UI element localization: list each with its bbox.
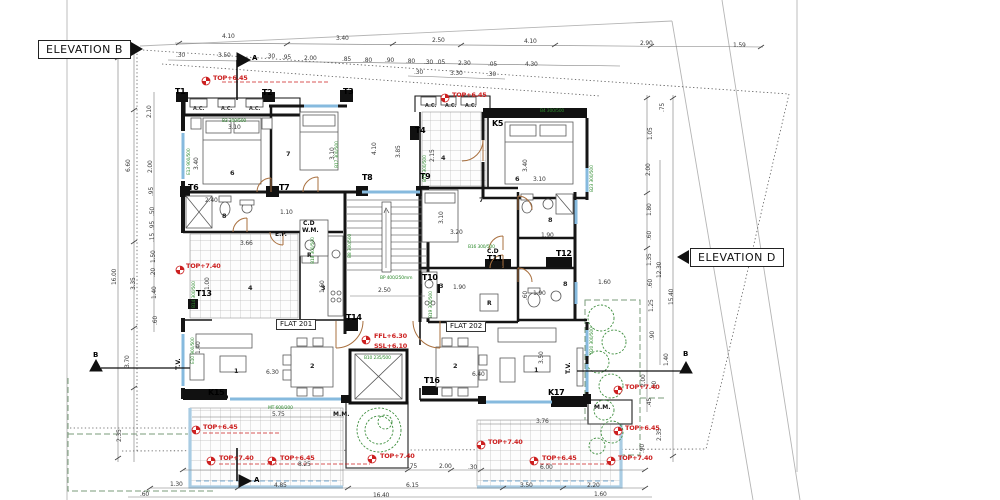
level-annotation-4: SSL+6.10 [374, 343, 407, 350]
dim-61: 6.00 [540, 465, 553, 471]
dim-3: 4.10 [524, 39, 537, 45]
level-annotation-3: FFL+6.30 [374, 333, 407, 340]
dim-81: 2.15 [430, 149, 436, 162]
wall-tag-6: T7 [279, 184, 289, 192]
dim-93: 3.50 [539, 351, 545, 364]
wall-tag-4: K5 [492, 120, 503, 128]
section-letter-1: A [254, 477, 259, 484]
dim-82: 3.40 [523, 159, 529, 172]
dim-58: .75 [408, 464, 417, 470]
window-code-2: B17 300/500 [336, 141, 341, 168]
utility-label-3: W.M. [302, 228, 319, 234]
dim-17: 2.30 [458, 61, 471, 67]
window-code-6: MT 600/200 [268, 407, 293, 412]
dim-29: 2.00 [148, 160, 154, 173]
window-code-15: B19 300/500 [430, 291, 435, 318]
room-number-13: 2 [453, 363, 458, 370]
dim-44: 12.30 [657, 262, 663, 278]
dim-22: .30 [487, 72, 496, 78]
dim-65: 3.50 [520, 483, 533, 489]
dim-85: 3.20 [450, 230, 463, 236]
dim-60: .30 [468, 465, 477, 471]
dim-31: .50 [150, 207, 156, 216]
dim-84: 3.10 [439, 211, 445, 224]
dim-87: 1.90 [533, 291, 546, 297]
floor-plan-sheet: { "elevations": { "b": "ELEVATION B", "d… [0, 0, 1000, 500]
utility-label-1: E.P. [497, 263, 509, 269]
dim-64: 6.15 [406, 483, 419, 489]
section-letter-0: A [252, 55, 257, 62]
dim-72: 2.40 [205, 198, 218, 204]
dim-73: 1.10 [280, 210, 293, 216]
flat-label-1: FLAT 202 [446, 321, 486, 332]
dim-56: 3.76 [536, 419, 549, 425]
room-number-3: 4 [248, 285, 253, 292]
utility-label-10: T.V. [566, 362, 572, 374]
wall-tag-9: T10 [422, 274, 438, 282]
level-annotation-9: TOP+7.40 [488, 439, 523, 446]
dim-2: 2.50 [432, 38, 445, 44]
window-code-5: E10 900/500 [192, 338, 197, 365]
dim-89: .60 [523, 291, 529, 300]
dim-68: 16.40 [373, 493, 389, 499]
room-number-14: 1 [534, 367, 539, 374]
utility-label-9: T.V. [176, 358, 182, 370]
room-number-6: 2 [310, 363, 315, 370]
room-number-2: 8 [222, 213, 227, 220]
room-number-11: 8 [563, 281, 568, 288]
dim-52: .45 [647, 398, 653, 407]
wall-tag-2: T3 [343, 88, 353, 96]
section-letter-3: B [683, 351, 688, 358]
dim-42: .60 [647, 231, 653, 240]
dim-24: 6.60 [126, 159, 132, 172]
dim-43: 1.35 [647, 253, 653, 266]
window-code-1: E13 900/500 [188, 149, 193, 176]
wall-tag-12: T13 [196, 290, 212, 298]
dim-78: 2.50 [378, 288, 391, 294]
wall-tag-0: T1 [175, 88, 185, 96]
dim-79: 4.10 [372, 142, 378, 155]
room-number-1: 7 [286, 151, 291, 158]
dim-25: 3.35 [131, 277, 137, 290]
window-code-4: B14 300/500 [193, 281, 198, 308]
level-annotation-11: TOP+7.40 [618, 455, 653, 462]
utility-label-8: R [487, 301, 492, 307]
room-number-7: 4 [441, 155, 446, 162]
wall-tag-13: T14 [346, 314, 362, 322]
dim-49: 1.40 [664, 353, 670, 366]
dim-54: .90 [640, 444, 646, 453]
dim-47: 15.40 [669, 289, 675, 305]
wall-tag-14: T16 [424, 377, 440, 385]
ac-unit-label-2: A.C. [249, 107, 260, 112]
room-number-10: 8 [548, 217, 553, 224]
dim-46: 1.25 [649, 299, 655, 312]
dim-28: 2.10 [147, 105, 153, 118]
window-code-12: B16 300/500 [468, 246, 495, 251]
room-number-12: 3 [439, 283, 444, 290]
dim-40: 2.00 [646, 163, 652, 176]
dim-39: 1.05 [648, 127, 654, 140]
dim-62: 1.30 [170, 482, 183, 488]
dim-74: 3.66 [240, 241, 253, 247]
level-annotation-13: TOP+7.40 [625, 384, 660, 391]
dim-71: 3.40 [194, 157, 200, 170]
dim-37: .60 [153, 316, 159, 325]
dim-6: .30 [176, 53, 185, 59]
dim-20: .30 [414, 70, 423, 76]
flat-label-0: FLAT 201 [276, 319, 316, 330]
dim-8: .30 [266, 54, 275, 60]
dim-80: 3.85 [396, 145, 402, 158]
dim-26: 3.70 [125, 355, 131, 368]
dim-35: .20 [151, 268, 157, 277]
wall-tag-3: T4 [415, 127, 425, 135]
window-code-11: B15 300/500 [424, 155, 429, 182]
utility-label-0: E.P. [275, 232, 287, 238]
ac-unit-label-0: A.C. [193, 107, 204, 112]
dim-48: .90 [650, 331, 656, 340]
ac-unit-label-3: A.C. [425, 104, 436, 109]
level-annotation-10: TOP+6.45 [542, 455, 577, 462]
dim-21: 3.30 [450, 71, 463, 77]
dim-91: 6.30 [266, 370, 279, 376]
dim-66: 2.20 [587, 483, 600, 489]
dim-67: .60 [140, 492, 149, 498]
dim-30: .95 [149, 187, 155, 196]
dim-15: .30 [424, 60, 433, 66]
level-annotation-6: TOP+7.40 [219, 455, 254, 462]
dim-14: .80 [406, 59, 415, 65]
dim-18: .05 [488, 62, 497, 68]
dim-57: 8.25 [298, 462, 311, 468]
dim-23: 16.00 [112, 269, 118, 285]
ac-unit-label-4: A.C. [445, 104, 456, 109]
dim-88: 1.90 [453, 285, 466, 291]
dim-90: 1.60 [598, 280, 611, 286]
dim-36: 1.40 [152, 286, 158, 299]
room-number-5: 1 [234, 368, 239, 375]
wall-tag-7: T8 [362, 174, 372, 182]
dim-55: 5.75 [272, 412, 285, 418]
dim-13: .90 [385, 58, 394, 64]
dim-1: 3.40 [336, 36, 349, 42]
utility-label-6: M.M. [594, 405, 611, 411]
level-annotation-0: TOP+6.45 [213, 75, 248, 82]
section-letter-2: B [93, 352, 98, 359]
wall-tag-15: K15 [208, 389, 224, 397]
dim-45: .60 [648, 279, 654, 288]
dim-92: 6.40 [472, 372, 485, 378]
dim-94: 1.40 [196, 341, 202, 354]
level-annotation-2: TOP+7.40 [186, 263, 221, 270]
window-code-9: B23 300/500 [591, 165, 596, 192]
window-code-8: B4 300/500 [540, 110, 564, 115]
dim-41: 1.80 [647, 203, 653, 216]
window-code-13: B10 235/500 [364, 357, 391, 362]
room-number-8: 6 [515, 176, 520, 183]
dim-34: 1.50 [151, 250, 157, 263]
dim-27: 2.35 [117, 429, 123, 442]
dim-70: 3.10 [228, 125, 241, 131]
dim-33: .15 [150, 233, 156, 242]
dim-9: .95 [282, 55, 291, 61]
dim-0: 4.10 [222, 34, 235, 40]
wall-tag-11: T12 [556, 250, 572, 258]
dim-7: 3.50 [218, 53, 231, 59]
dim-4: 2.90 [640, 41, 653, 47]
dim-16: .05 [436, 60, 445, 66]
dim-19: 4.30 [525, 62, 538, 68]
window-code-3: B18 300/500 [312, 237, 317, 264]
dim-11: .85 [342, 57, 351, 63]
annotation-layer: 4.103.402.504.102.901.59.303.50.30.952.0… [0, 0, 1000, 500]
ac-unit-label-5: A.C. [465, 104, 476, 109]
window-code-0: B3 300/500 [222, 120, 246, 125]
level-annotation-8: TOP+7.40 [380, 453, 415, 460]
dim-69: 1.60 [594, 492, 607, 498]
dim-59: 2.00 [439, 464, 452, 470]
utility-label-5: M.M. [333, 412, 350, 418]
room-number-4: 3 [321, 285, 326, 292]
window-code-7: B8 300/500 [349, 234, 354, 258]
level-annotation-5: TOP+6.45 [203, 424, 238, 431]
ac-unit-label-1: A.C. [221, 107, 232, 112]
dim-86: 1.90 [541, 233, 554, 239]
dim-38: .75 [660, 103, 666, 112]
dim-63: 4.85 [274, 483, 287, 489]
dim-32: .95 [150, 221, 156, 230]
dim-10: 2.00 [304, 56, 317, 62]
dim-5: 1.59 [733, 43, 746, 49]
room-number-9: 7 [479, 197, 484, 204]
level-annotation-12: TOP+6.45 [625, 425, 660, 432]
wall-tag-5: T6 [188, 184, 198, 192]
wall-tag-1: T2 [262, 89, 272, 97]
window-code-10: B20 300/500 [591, 327, 596, 354]
level-annotation-7: TOP+6.45 [280, 455, 315, 462]
wall-tag-16: K17 [548, 389, 564, 397]
level-annotation-1: TOP+6.45 [452, 92, 487, 99]
room-number-0: 6 [230, 170, 235, 177]
dim-12: .80 [363, 58, 372, 64]
dim-83: 3.10 [533, 177, 546, 183]
window-code-14: BP 400/250mm [380, 277, 412, 282]
